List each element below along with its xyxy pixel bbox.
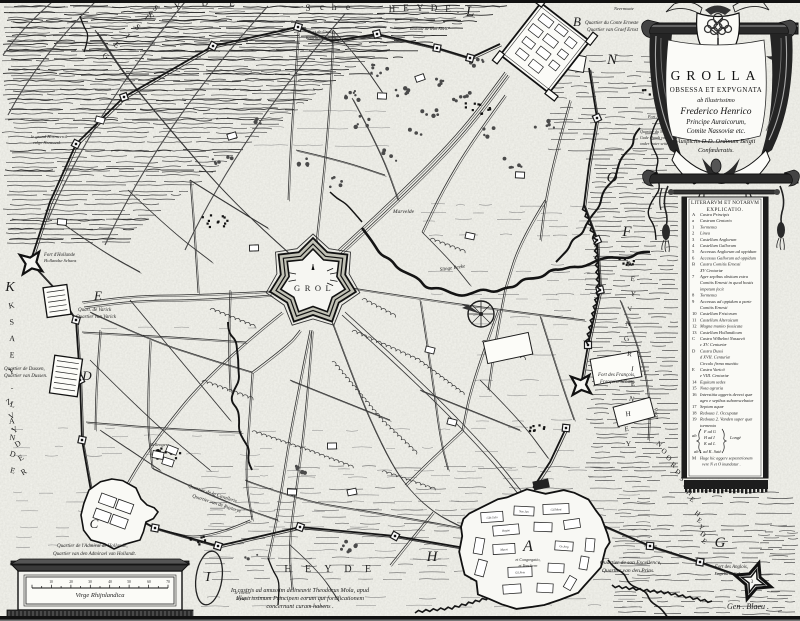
- svg-text:c: c: [320, 2, 324, 12]
- svg-text:LITERARVM ET NOTARVM: LITERARVM ET NOTARVM: [691, 200, 759, 206]
- svg-text:30: 30: [88, 580, 92, 584]
- svg-text:16: 16: [692, 392, 697, 397]
- svg-text:le grand Hornwerck: le grand Hornwerck: [31, 134, 68, 139]
- svg-text:Tormenta: Tormenta: [700, 293, 717, 298]
- svg-text:M: M: [692, 456, 696, 461]
- svg-text:XV Centuriæ: XV Centuriæ: [699, 268, 723, 273]
- svg-text:12: 12: [692, 324, 697, 329]
- svg-text:c XV. Centuriæ: c XV. Centuriæ: [700, 342, 726, 347]
- svg-text:Auspiciis D.D. Ordinum Belgii: Auspiciis D.D. Ordinum Belgii: [676, 138, 756, 145]
- svg-text:10: 10: [692, 311, 697, 316]
- svg-text:11: 11: [692, 317, 697, 322]
- svg-text:Principe Auraicorum,: Principe Auraicorum,: [685, 119, 746, 126]
- svg-text:13: 13: [692, 330, 697, 335]
- svg-text:Fort de Graef: Fort de Graef: [307, 29, 334, 34]
- svg-text:Gib.Geln: Gib.Geln: [486, 515, 498, 520]
- svg-text:Accessus ad oppidum a parte: Accessus ad oppidum a parte: [699, 299, 752, 304]
- svg-text:E: E: [365, 564, 371, 575]
- svg-text:D: D: [344, 564, 351, 575]
- svg-text:Redoute de Iean Abels: Redoute de Iean Abels: [409, 26, 448, 31]
- svg-text:GROLLA: GROLLA: [671, 68, 762, 83]
- svg-text:Equitum sedes: Equitum sedes: [699, 379, 726, 384]
- svg-text:E: E: [9, 350, 15, 359]
- svg-text:E: E: [93, 288, 102, 303]
- svg-text:20: 20: [69, 580, 73, 584]
- svg-text:H: H: [284, 564, 291, 575]
- svg-text:Castellum Hollandicum: Castellum Hollandicum: [700, 330, 742, 335]
- svg-text:E: E: [630, 275, 635, 283]
- svg-text:Frederico Henrico: Frederico Henrico: [679, 107, 751, 117]
- svg-text:K: K: [4, 280, 15, 295]
- svg-text:Quartier de son Excellence,: Quartier de son Excellence,: [600, 560, 662, 566]
- svg-text:tormenta: tormenta: [700, 423, 717, 428]
- svg-text:d XVII. Centuriæ: d XVII. Centuriæ: [700, 355, 730, 360]
- svg-text:C: C: [692, 336, 695, 341]
- svg-text:Hollandse Schans: Hollandse Schans: [43, 258, 77, 263]
- svg-text:D: D: [431, 3, 438, 13]
- svg-text:Quartier van den Admirael van: Quartier van den Admirael van Hollandt.: [53, 552, 136, 557]
- svg-text:Circulo firma munitio: Circulo firma munitio: [700, 361, 739, 366]
- svg-text:Accessus Anglorum ad oppidum: Accessus Anglorum ad oppidum: [699, 249, 756, 254]
- svg-text:Comite Nassoviæ etc.: Comite Nassoviæ etc.: [687, 128, 746, 135]
- svg-text:Y: Y: [626, 440, 631, 448]
- svg-text:Engelsche Schans: Engelsche Schans: [305, 35, 336, 40]
- svg-text:E: E: [305, 564, 311, 575]
- svg-text:Nota agraria: Nota agraria: [699, 386, 724, 391]
- svg-text:In castris ad amussim delineav: In castris ad amussim delineavit Theodor…: [230, 587, 370, 594]
- svg-text:Nas.Jan: Nas.Jan: [518, 509, 529, 514]
- svg-text:A: A: [9, 334, 16, 343]
- svg-text:H ad I: H ad I: [703, 435, 715, 440]
- svg-text:D: D: [81, 368, 92, 383]
- svg-text:Fort des Anglois,: Fort des Anglois,: [714, 565, 748, 570]
- svg-text:Huge hic aggere septentrionem: Huge hic aggere septentrionem: [699, 456, 753, 461]
- svg-text:Castra Comitis Ernesti: Castra Comitis Ernesti: [700, 262, 741, 267]
- svg-text:E: E: [631, 380, 635, 388]
- svg-text:Neermoate: Neermoate: [613, 6, 634, 11]
- svg-text:A: A: [627, 260, 633, 268]
- svg-text:a: a: [692, 218, 694, 223]
- svg-text:ab I. ad K. Satè: ab I. ad K. Satè: [694, 449, 721, 454]
- svg-text:OBSESSA ET EXPVGNATA: OBSESSA ET EXPVGNATA: [670, 87, 762, 94]
- svg-text:Gil.Prin: Gil.Prin: [515, 570, 526, 574]
- svg-text:B: B: [573, 14, 581, 29]
- svg-text:Septum aquæ: Septum aquæ: [700, 404, 724, 409]
- svg-text:Gr.Jorg: Gr.Jorg: [559, 544, 569, 549]
- svg-text:Redouta 2. Vanden super quæ: Redouta 2. Vanden super quæ: [699, 417, 752, 422]
- svg-text:E: E: [403, 3, 409, 13]
- svg-text:Quartier van Graef Ernst: Quartier van Graef Ernst: [587, 28, 639, 33]
- svg-text:19: 19: [692, 417, 697, 422]
- svg-text:impetum fecit: impetum fecit: [700, 286, 725, 291]
- svg-text:Quartier van Varick: Quartier van Varick: [76, 315, 117, 320]
- svg-text:Interstitia aggeris devexi quæ: Interstitia aggeris devexi quæ: [699, 392, 752, 397]
- svg-text:N: N: [606, 52, 618, 68]
- svg-text:O: O: [607, 170, 618, 186]
- svg-text:Marvelde: Marvelde: [392, 209, 415, 215]
- svg-text:G R O L: G R O L: [294, 283, 332, 293]
- svg-text:Linea: Linea: [699, 231, 711, 236]
- svg-text:Gen . Blaeu .: Gen . Blaeu .: [727, 602, 769, 611]
- svg-text:Y: Y: [417, 3, 424, 13]
- svg-text:Bellenger: Bellenger: [150, 442, 168, 447]
- svg-text:17: 17: [692, 404, 697, 409]
- svg-text:L: L: [465, 4, 474, 20]
- svg-text:F: F: [621, 224, 632, 240]
- svg-text:ab: ab: [692, 433, 697, 438]
- svg-text:40: 40: [108, 580, 112, 584]
- svg-text:Y: Y: [324, 564, 331, 575]
- svg-text:10: 10: [49, 580, 53, 584]
- svg-text:E: E: [445, 4, 451, 14]
- svg-text:H: H: [625, 410, 631, 418]
- svg-text:14: 14: [692, 379, 697, 384]
- svg-text:C: C: [90, 516, 99, 531]
- svg-text:Quart. de Varick: Quart. de Varick: [78, 308, 112, 313]
- svg-text:Castrum Centurio: Castrum Centurio: [700, 218, 733, 223]
- svg-text:.: .: [457, 5, 459, 15]
- svg-text:Castellum Anglorum: Castellum Anglorum: [700, 237, 736, 242]
- svg-text:18: 18: [692, 410, 697, 415]
- svg-text:G: G: [715, 535, 726, 551]
- svg-text:Ager sepibus obsitum extra: Ager sepibus obsitum extra: [699, 274, 749, 279]
- svg-text:Confœderatis.: Confœderatis.: [698, 147, 734, 154]
- svg-text:70: 70: [166, 580, 170, 584]
- svg-text:E: E: [692, 367, 695, 372]
- svg-text:Quartier du Conte Erneste: Quartier du Conte Erneste: [585, 21, 639, 26]
- svg-text:K ad L: K ad L: [703, 441, 716, 446]
- svg-text:vulgo Hornwerk: vulgo Hornwerk: [33, 140, 60, 145]
- svg-text:et Vanchren: et Vanchren: [519, 563, 538, 568]
- svg-text:60: 60: [147, 580, 151, 584]
- svg-text:S: S: [9, 317, 14, 326]
- svg-text:15: 15: [692, 386, 697, 391]
- svg-text:Quartier van den Prins.: Quartier van den Prins.: [602, 568, 655, 574]
- svg-text:ab Illustrissimo: ab Illustrissimo: [697, 98, 735, 104]
- svg-text:A: A: [522, 538, 533, 555]
- svg-text:Castra Varicii: Castra Varicii: [700, 367, 726, 372]
- svg-text:Tormenta: Tormenta: [700, 224, 717, 229]
- svg-text:Castra Wilhelmi Nassavii: Castra Wilhelmi Nassavii: [700, 336, 746, 341]
- svg-text:e: e: [346, 2, 350, 12]
- svg-text:50: 50: [127, 580, 131, 584]
- svg-text:Mauri: Mauri: [499, 547, 508, 551]
- svg-text:onder water sette: onder water sette: [640, 141, 668, 146]
- svg-text:concernunt curam habens .: concernunt curam habens .: [266, 603, 333, 610]
- svg-text:Castra Principis: Castra Principis: [700, 212, 729, 217]
- svg-text:Regim: Regim: [501, 528, 511, 533]
- svg-text:Quartier de l'Admiral de Holla: Quartier de l'Admiral de Hollande,: [57, 544, 128, 549]
- svg-text:agro e sepibus subarescebatur: agro e sepibus subarescebatur: [700, 398, 754, 403]
- svg-text:S: S: [305, 3, 310, 13]
- svg-text:Longè: Longè: [729, 435, 741, 440]
- svg-text:B: B: [692, 262, 695, 267]
- svg-text:Castellum Alteraicum: Castellum Alteraicum: [700, 317, 738, 322]
- svg-text:e VIII. Centuriæ: e VIII. Centuriæ: [700, 373, 729, 378]
- svg-text:Gil.Mont: Gil.Mont: [550, 507, 561, 511]
- svg-text:Redouta 1. Occupatæ: Redouta 1. Occupatæ: [699, 410, 738, 415]
- svg-text:Magna munito fossicata: Magna munito fossicata: [699, 324, 743, 329]
- svg-text:H: H: [389, 4, 396, 14]
- svg-text:F ad G: F ad G: [703, 429, 716, 434]
- svg-text:vere N et O inundatur .: vere N et O inundatur .: [702, 462, 741, 467]
- svg-text:H: H: [426, 549, 439, 565]
- svg-text:Virge Rhijnlandica: Virge Rhijnlandica: [76, 592, 125, 599]
- svg-text:Fort des François,: Fort des François,: [597, 373, 635, 378]
- svg-text:Accessus Gallorum ad oppidum: Accessus Gallorum ad oppidum: [699, 255, 756, 260]
- svg-text:Engelsche Schans.: Engelsche Schans.: [714, 571, 749, 576]
- svg-text:Castellum Frisiorum: Castellum Frisiorum: [700, 311, 737, 316]
- svg-text:Illustrissimum Principem eorum: Illustrissimum Principem eorum qui forti…: [235, 595, 364, 602]
- svg-text:Castra Dussi: Castra Dussi: [700, 348, 724, 353]
- svg-text:h: h: [332, 2, 337, 12]
- svg-text:Comitis Ernesti: Comitis Ernesti: [700, 305, 728, 310]
- svg-text:Castellum Gallorum: Castellum Gallorum: [700, 243, 736, 248]
- svg-text:Comitis Ernesti in quod hostis: Comitis Ernesti in quod hostis: [700, 280, 753, 285]
